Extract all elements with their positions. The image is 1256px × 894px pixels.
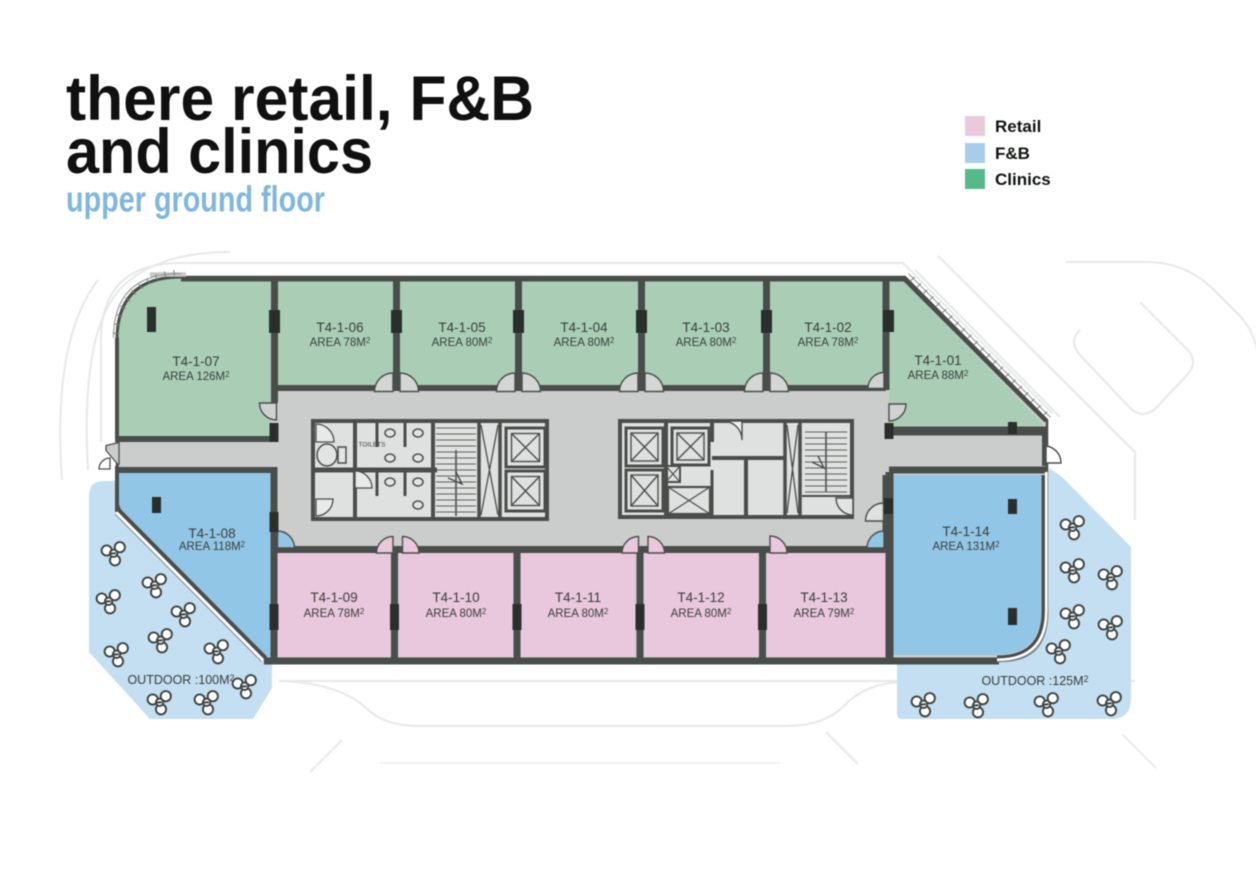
svg-text:and clinics: and clinics [66,117,373,187]
svg-text:Retail: Retail [995,117,1041,136]
svg-text:AREA 118M2: AREA 118M2 [179,540,246,553]
svg-text:AREA 88M2: AREA 88M2 [908,369,969,382]
svg-text:T4-1-03: T4-1-03 [682,320,729,335]
svg-text:AREA 126M2: AREA 126M2 [162,370,230,383]
svg-text:F&B: F&B [995,144,1030,163]
svg-text:OUTDOOR :125M2: OUTDOOR :125M2 [981,674,1088,688]
svg-text:T4-1-04: T4-1-04 [560,320,608,335]
svg-text:T4-1-05: T4-1-05 [438,320,485,335]
svg-text:T4-1-12: T4-1-12 [677,590,724,605]
svg-text:T4-1-14: T4-1-14 [942,524,990,539]
svg-text:AREA 80M2: AREA 80M2 [554,336,615,349]
svg-text:AREA 80M2: AREA 80M2 [548,607,609,620]
svg-text:AREA 79M2: AREA 79M2 [794,607,855,620]
svg-text:OUTDOOR :100M2: OUTDOOR :100M2 [127,673,234,687]
svg-text:AREA 80M2: AREA 80M2 [432,336,493,349]
svg-text:AREA 78M2: AREA 78M2 [304,607,365,620]
svg-text:Clinics: Clinics [995,170,1051,189]
svg-text:AREA 80M2: AREA 80M2 [671,607,732,620]
svg-text:AREA 78M2: AREA 78M2 [310,336,371,349]
svg-text:T4-1-08: T4-1-08 [188,526,235,541]
svg-text:T4-1-10: T4-1-10 [432,590,479,605]
svg-text:T4-1-01: T4-1-01 [914,353,961,368]
svg-text:T4-1-09: T4-1-09 [310,590,357,605]
svg-text:TOILETS: TOILETS [359,442,387,449]
svg-text:AREA 80M2: AREA 80M2 [676,336,737,349]
svg-text:T4-1-11: T4-1-11 [555,590,601,605]
svg-text:T4-1-02: T4-1-02 [804,320,851,335]
svg-text:T4-1-06: T4-1-06 [316,320,363,335]
svg-text:AREA 80M2: AREA 80M2 [426,607,487,620]
svg-text:AREA 78M2: AREA 78M2 [798,336,859,349]
svg-text:AREA 131M2: AREA 131M2 [932,540,1000,553]
svg-text:T4-1-07: T4-1-07 [172,354,219,369]
svg-text:upper ground floor: upper ground floor [66,179,325,220]
svg-text:T4-1-13: T4-1-13 [800,590,847,605]
